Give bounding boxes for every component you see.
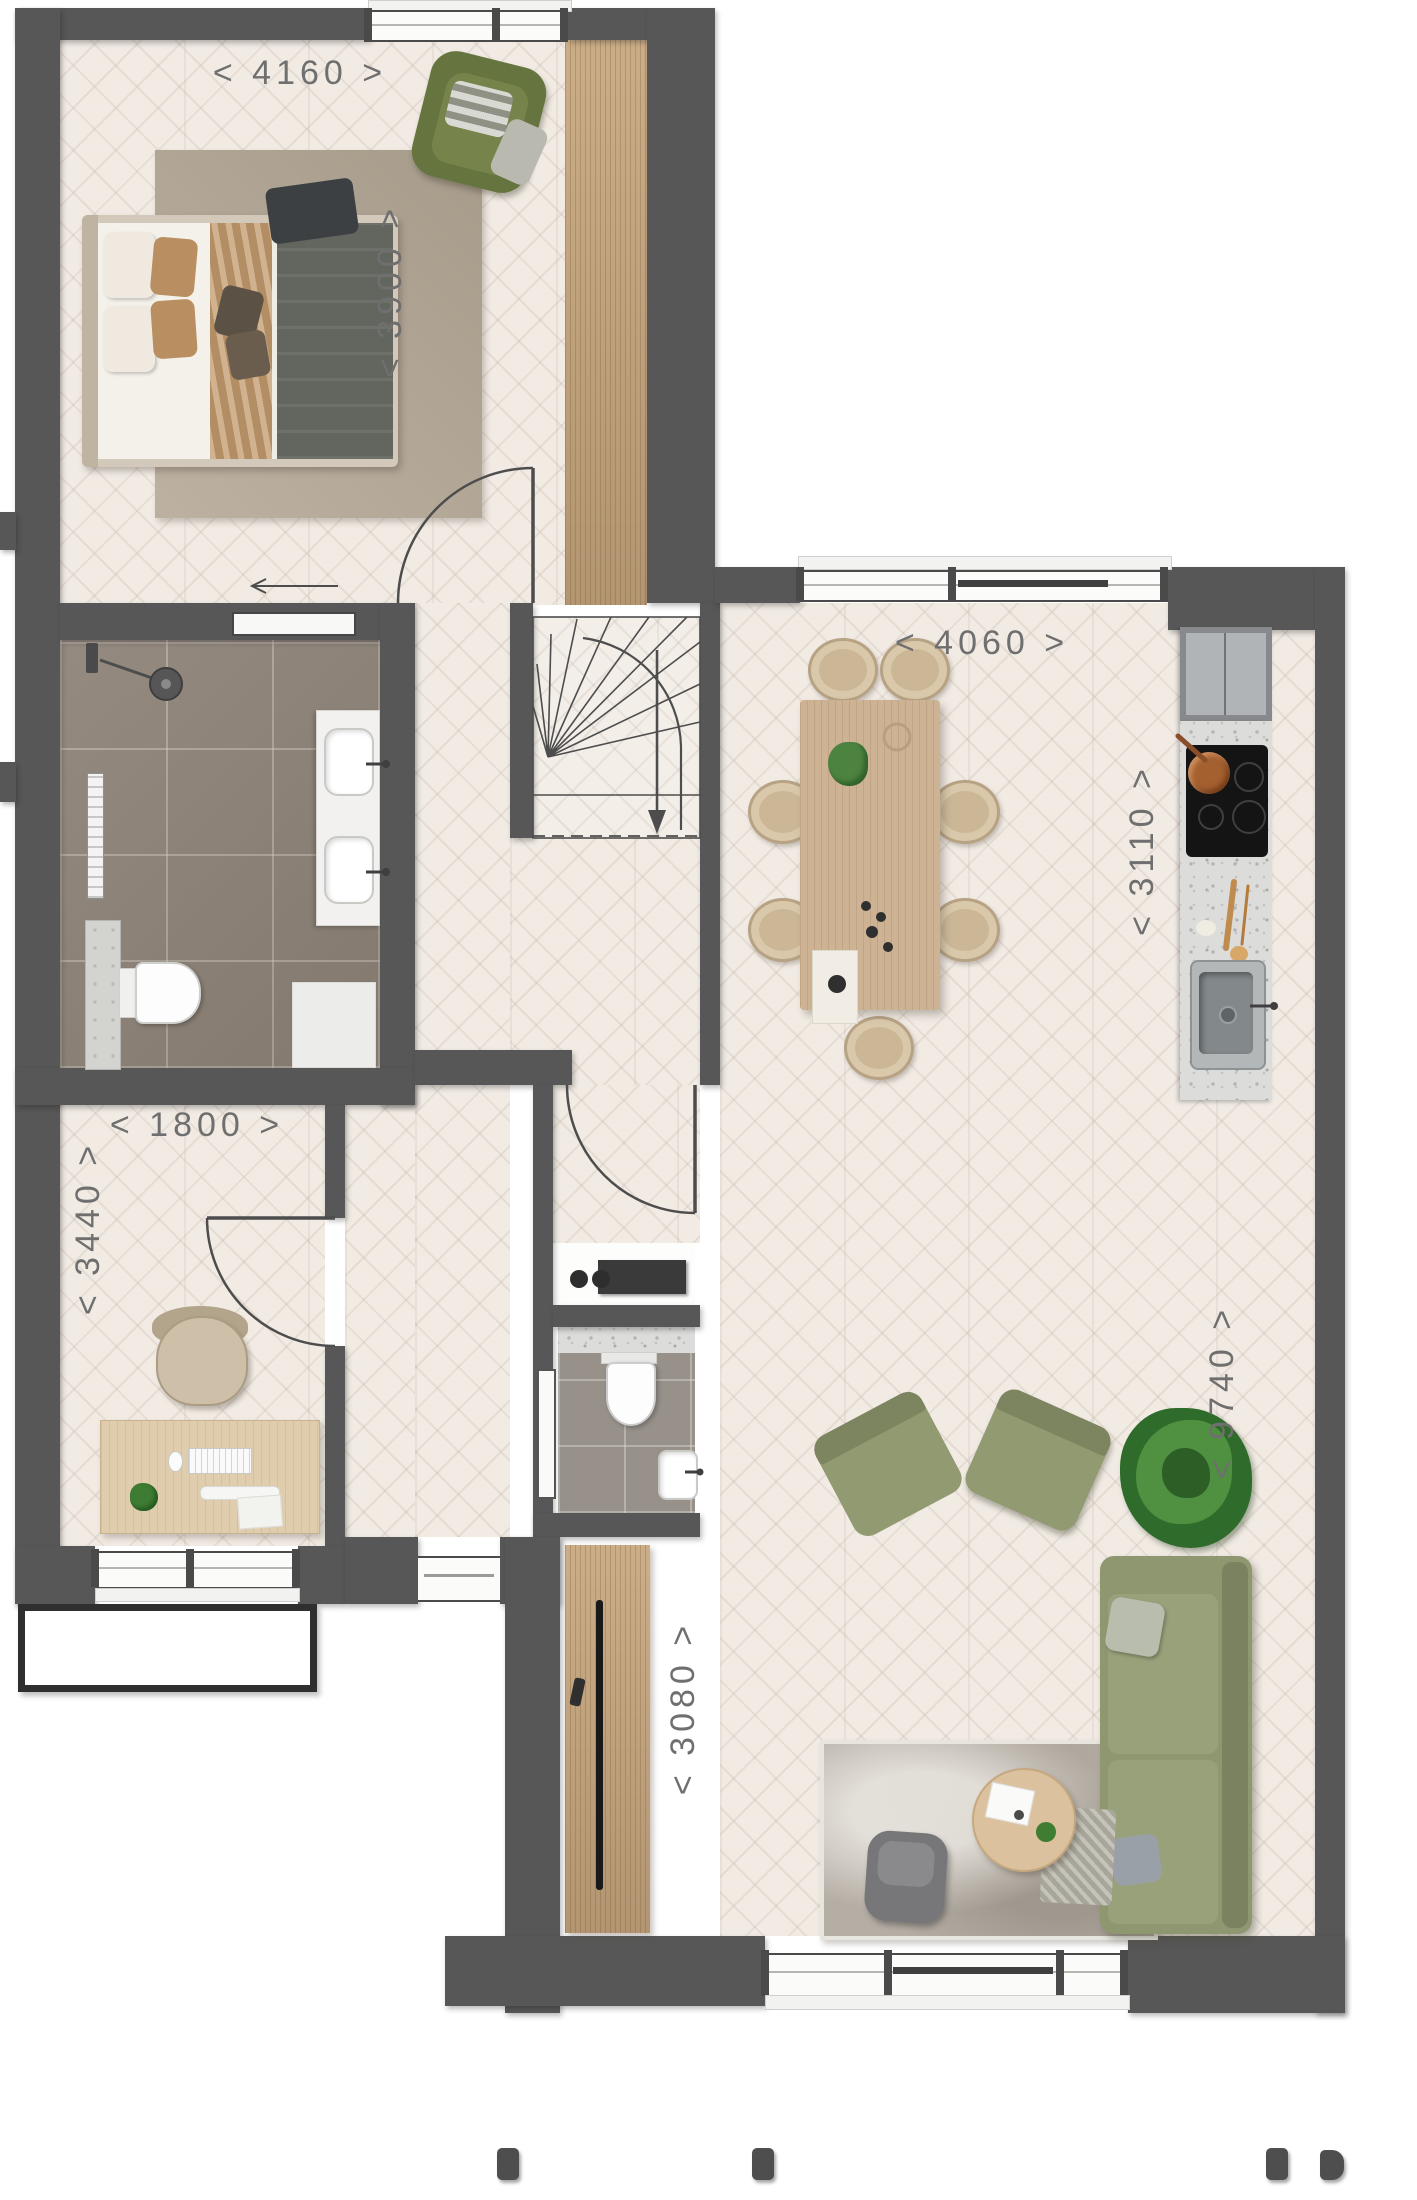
wc-counter bbox=[558, 1327, 695, 1353]
tv-screen bbox=[596, 1600, 603, 1890]
living-window-post bbox=[761, 1950, 769, 1996]
bedroom-wardrobe bbox=[565, 35, 647, 605]
pillow-tan-2 bbox=[150, 299, 198, 360]
balustrade-post-3 bbox=[1266, 2148, 1288, 2180]
entry-door bbox=[418, 1556, 500, 1602]
stair-hall-floor bbox=[510, 838, 700, 1085]
dim-living-width: < 4060 > bbox=[832, 622, 1132, 664]
burner-2 bbox=[1198, 804, 1224, 830]
wall-living-bottom-right bbox=[1128, 1936, 1345, 2013]
wall-top-left bbox=[15, 8, 370, 40]
wall-wc-bottom bbox=[533, 1513, 700, 1537]
wall-study-right-bottom bbox=[325, 1346, 345, 1546]
pillow-cream-2 bbox=[103, 306, 155, 372]
floor-plan: < 4160 > < 3900 > < 4060 > < 3110 > < 18… bbox=[0, 0, 1417, 2200]
sliding-door-panel bbox=[232, 612, 356, 636]
dim-living-depth: < 9740 > bbox=[1201, 1242, 1243, 1542]
dim-bedroom-depth: < 3900 > bbox=[369, 141, 411, 441]
study-window-post bbox=[91, 1549, 99, 1587]
wall-niche-bottom bbox=[553, 1305, 700, 1327]
wc-door-leaf bbox=[537, 1369, 556, 1499]
dining-window-mullion bbox=[948, 567, 956, 601]
mouse bbox=[168, 1451, 183, 1472]
bedroom-window-mullion bbox=[492, 8, 500, 42]
living-window-grille bbox=[893, 1967, 1053, 1974]
bed-headboard bbox=[82, 215, 98, 467]
fridge-panel bbox=[1186, 633, 1266, 715]
dining-chair-5 bbox=[930, 780, 1000, 844]
desk-chair-seat bbox=[156, 1316, 248, 1406]
washbasin-1 bbox=[324, 728, 374, 796]
stairs-floor bbox=[533, 617, 700, 838]
wall-kitchen-corner bbox=[1168, 567, 1315, 630]
dining-window-post2 bbox=[1160, 567, 1168, 601]
sofa-pillow-1 bbox=[1104, 1596, 1167, 1659]
wall-top-right bbox=[568, 8, 647, 40]
copper-pan bbox=[1188, 752, 1230, 794]
wc-basin bbox=[658, 1450, 698, 1500]
living-window-mullion bbox=[884, 1950, 892, 1996]
sofa-pillow-2 bbox=[1109, 1833, 1163, 1887]
dining-window-grille bbox=[958, 580, 1108, 587]
study-window-outer-sill bbox=[95, 1588, 300, 1602]
fridge-divider bbox=[1224, 633, 1226, 715]
wall-stair-left bbox=[510, 603, 533, 838]
flour-blob bbox=[1196, 920, 1216, 936]
study-window-post2 bbox=[292, 1549, 300, 1587]
coffee-table-plant bbox=[1036, 1822, 1056, 1842]
wall-hall-bottom-left bbox=[345, 1537, 418, 1604]
wall-right bbox=[1315, 567, 1345, 2013]
wall-left bbox=[15, 8, 60, 1604]
dining-chair-6 bbox=[930, 898, 1000, 962]
coffee-table-cup bbox=[1014, 1810, 1024, 1820]
wall-left-stub-a bbox=[0, 512, 16, 550]
living-window bbox=[765, 1953, 1128, 1997]
pillow-cream-1 bbox=[103, 232, 155, 298]
hall-floor-2 bbox=[345, 1105, 415, 1537]
pillow-tan-1 bbox=[150, 236, 199, 298]
table-plant bbox=[828, 742, 868, 786]
radiator bbox=[87, 773, 104, 899]
washbasin-2 bbox=[324, 836, 374, 904]
dining-chair-7 bbox=[844, 1016, 914, 1080]
tv-cabinet bbox=[565, 1545, 650, 1933]
desk-plant bbox=[130, 1483, 158, 1511]
balustrade-post-2 bbox=[752, 2148, 774, 2180]
dim-bedroom-width: < 4160 > bbox=[150, 52, 450, 94]
dim-kitchen-depth: < 3110 > bbox=[1121, 700, 1163, 1000]
bedroom-window-post bbox=[364, 8, 372, 42]
wc-toilet-bowl bbox=[606, 1362, 656, 1426]
wall-left-stub-b bbox=[0, 762, 16, 802]
wall-corridor-right bbox=[700, 603, 720, 1085]
living-window-post2 bbox=[1120, 1950, 1128, 1996]
balustrade-post-4 bbox=[1320, 2150, 1344, 2180]
wall-dining-top-left bbox=[715, 567, 800, 603]
wall-study-bottom-left bbox=[15, 1546, 95, 1604]
vestibule-floor bbox=[553, 1085, 700, 1243]
toilet-bowl bbox=[135, 962, 201, 1024]
bedroom-window bbox=[370, 10, 568, 42]
desk bbox=[100, 1420, 320, 1534]
living-window-outer-sill bbox=[765, 1995, 1130, 2010]
pouf-highlight bbox=[877, 1840, 936, 1888]
dim-study-depth: < 3440 > bbox=[67, 1078, 109, 1378]
table-cup bbox=[828, 975, 846, 993]
study-window-mullion bbox=[186, 1549, 194, 1587]
wall-bath-right bbox=[380, 603, 415, 1105]
pillow-brown-2 bbox=[224, 329, 271, 381]
bedroom-window-post2 bbox=[560, 8, 568, 42]
balustrade-post-1 bbox=[497, 2148, 519, 2180]
keyboard bbox=[188, 1448, 252, 1474]
dining-window bbox=[800, 570, 1168, 602]
niche-console bbox=[598, 1260, 686, 1294]
sofa-back bbox=[1222, 1562, 1248, 1928]
kitchen-sink-drain bbox=[1219, 1006, 1237, 1024]
niche-knob-2 bbox=[592, 1270, 610, 1288]
living-window-mullion2 bbox=[1056, 1950, 1064, 1996]
burner-3 bbox=[1232, 800, 1266, 834]
wall-living-bottom-left bbox=[445, 1936, 765, 2006]
wall-hall-living bbox=[415, 1050, 572, 1085]
niche-knob-1 bbox=[570, 1270, 588, 1288]
wall-bedroom-right bbox=[647, 8, 715, 603]
dining-window-sill bbox=[798, 556, 1172, 570]
study-window bbox=[95, 1551, 298, 1589]
bath-mat bbox=[292, 982, 376, 1068]
burner-1 bbox=[1234, 762, 1264, 792]
toilet-privacy-wall bbox=[85, 920, 121, 1070]
dim-tv-wall: < 3080 > bbox=[662, 1558, 704, 1858]
dining-window-post bbox=[796, 567, 804, 601]
wall-study-bottom-right bbox=[298, 1546, 345, 1604]
french-balcony bbox=[18, 1604, 317, 1692]
desk-paper bbox=[237, 1495, 283, 1530]
